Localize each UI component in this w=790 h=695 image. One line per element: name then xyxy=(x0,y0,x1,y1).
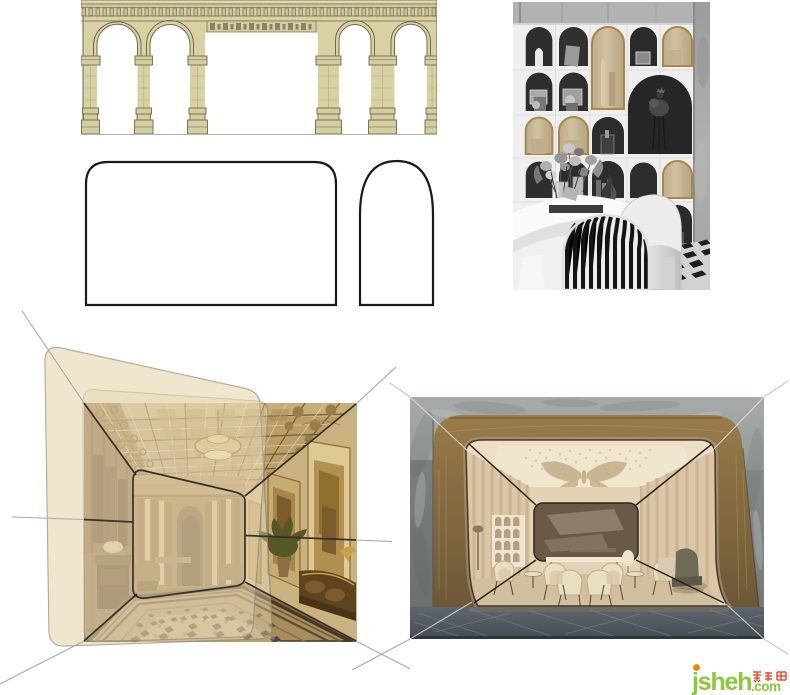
svg-text:jsheh: jsheh xyxy=(691,668,751,695)
